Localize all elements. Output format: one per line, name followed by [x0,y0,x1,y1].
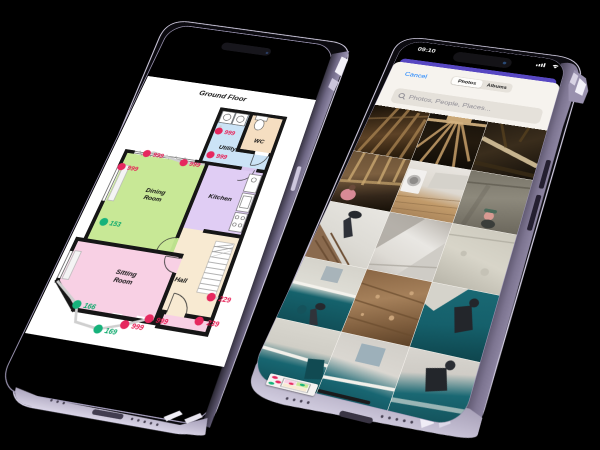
svg-text:Ground Floor: Ground Floor [198,90,249,103]
svg-text:999: 999 [130,323,146,333]
svg-text:169: 169 [103,328,119,338]
